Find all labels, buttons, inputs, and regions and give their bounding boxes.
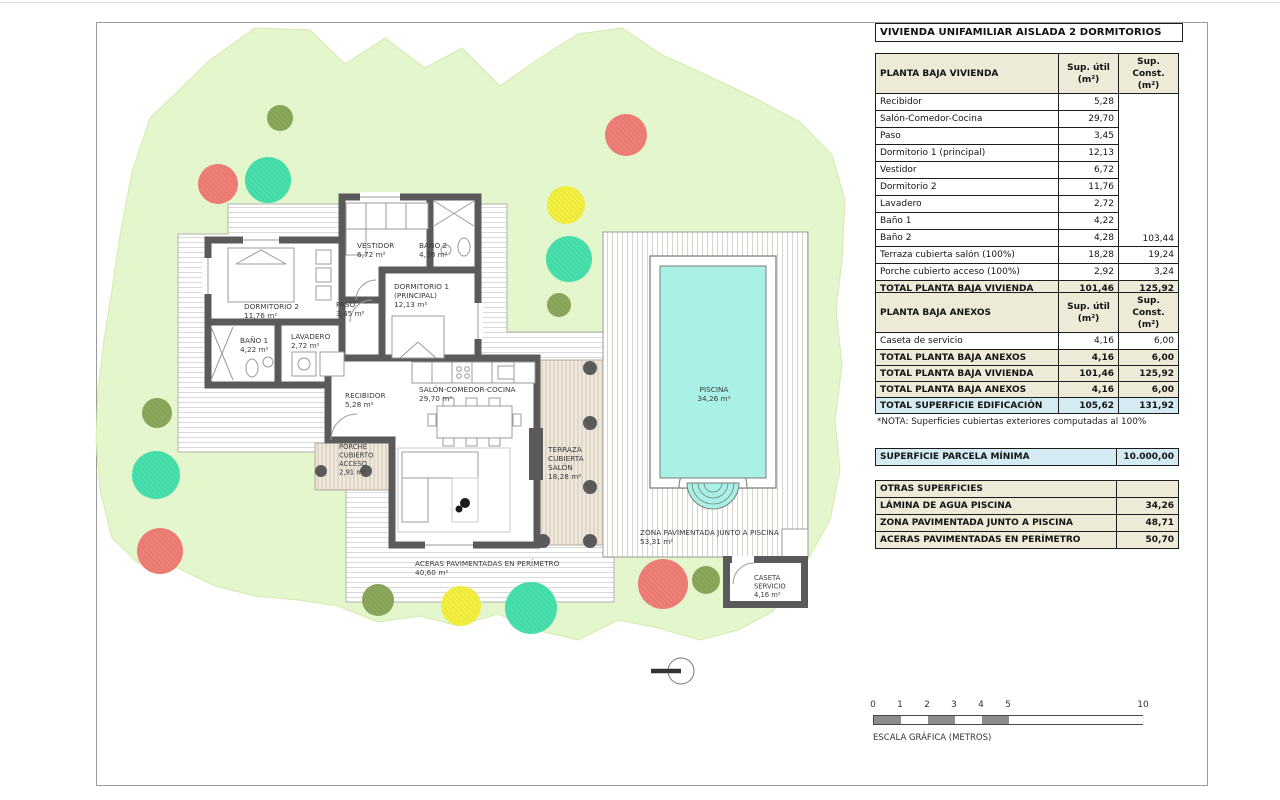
table-row: LÁMINA DE AGUA PISCINA34,26 bbox=[876, 498, 1179, 515]
table-row: SUPERFICIE PARCELA MÍNIMA10.000,00 bbox=[876, 449, 1179, 466]
table-row: ACERAS PAVIMENTADAS EN PERÍMETRO50,70 bbox=[876, 532, 1179, 549]
scale-segment bbox=[901, 716, 928, 724]
pool-water bbox=[660, 266, 766, 478]
scale-segment bbox=[874, 716, 901, 724]
table-header-row: PLANTA BAJA ANEXOSSup. útil (m²)Sup. Con… bbox=[876, 293, 1179, 333]
scale-tick-label: 10 bbox=[1137, 700, 1148, 710]
table-row: Terraza cubierta salón (100%)18,2819,24 bbox=[876, 247, 1179, 264]
scale-tick-label: 0 bbox=[870, 700, 876, 710]
scale-tick-label: 1 bbox=[897, 700, 903, 710]
tree-icon bbox=[605, 114, 647, 156]
label-bano-1: BAÑO 14,22 m² bbox=[240, 336, 269, 354]
pool-zone-gate bbox=[782, 529, 808, 557]
scale-segment bbox=[955, 716, 982, 724]
tree-icon bbox=[546, 236, 592, 282]
table-row: TOTAL PLANTA BAJA ANEXOS4,166,00 bbox=[876, 350, 1179, 367]
tree-icon bbox=[638, 559, 688, 609]
scale-segment bbox=[928, 716, 955, 724]
label-piscina: PISCINA34,26 m² bbox=[697, 385, 730, 403]
label-bano-2: BAÑO 24,28 m² bbox=[419, 241, 448, 259]
room-bano-2 bbox=[430, 197, 478, 270]
scale-segment bbox=[1009, 716, 1144, 724]
tree-icon bbox=[245, 157, 291, 203]
tree-icon bbox=[142, 398, 172, 428]
table-planta-baja-vivienda: PLANTA BAJA VIVIENDASup. útil (m²)Sup. C… bbox=[875, 53, 1179, 298]
table-header-row: OTRAS SUPERFICIES bbox=[876, 481, 1179, 498]
tree-icon bbox=[132, 451, 180, 499]
table-planta-baja-anexos: PLANTA BAJA ANEXOSSup. útil (m²)Sup. Con… bbox=[875, 292, 1179, 367]
table-otras-superficies: OTRAS SUPERFICIESLÁMINA DE AGUA PISCINA3… bbox=[875, 480, 1179, 549]
tree-icon bbox=[692, 566, 720, 594]
north-indicator-icon bbox=[651, 658, 694, 684]
scale-bar: ESCALA GRÁFICA (METROS) 01234510 bbox=[873, 700, 1153, 752]
tree-icon bbox=[547, 186, 585, 224]
scale-tick-label: 2 bbox=[924, 700, 930, 710]
table-row: Caseta de servicio4,166,00 bbox=[876, 333, 1179, 350]
table-row: TOTAL SUPERFICIE EDIFICACIÓN105,62131,92 bbox=[876, 398, 1179, 414]
scale-tick-label: 4 bbox=[978, 700, 984, 710]
scale-bar-track bbox=[873, 715, 1143, 725]
nota-text: *NOTA: Superficies cubiertas exteriores … bbox=[877, 417, 1183, 427]
wall-pier bbox=[529, 428, 543, 480]
tree-icon bbox=[362, 584, 394, 616]
tree-icon bbox=[137, 528, 183, 574]
tree-icon bbox=[505, 582, 557, 634]
scale-tick-label: 3 bbox=[951, 700, 957, 710]
tree-icon bbox=[198, 164, 238, 204]
scale-bar-caption: ESCALA GRÁFICA (METROS) bbox=[873, 733, 991, 743]
table-row: Recibidor5,28103,44 bbox=[876, 94, 1179, 111]
scale-tick-label: 5 bbox=[1005, 700, 1011, 710]
table-row: Porche cubierto acceso (100%)2,923,24 bbox=[876, 264, 1179, 281]
plan-sheet: DORMITORIO 211,76 m²BAÑO 14,22 m²LAVADER… bbox=[0, 0, 1280, 800]
tree-icon bbox=[547, 293, 571, 317]
drawing-title: VIVIENDA UNIFAMILIAR AISLADA 2 DORMITORI… bbox=[875, 23, 1183, 42]
pool bbox=[650, 256, 776, 509]
table-totales: TOTAL PLANTA BAJA VIVIENDA101,46125,92TO… bbox=[875, 365, 1179, 414]
table-header-row: PLANTA BAJA VIVIENDASup. útil (m²)Sup. C… bbox=[876, 54, 1179, 94]
table-row: TOTAL PLANTA BAJA ANEXOS4,166,00 bbox=[876, 382, 1179, 398]
table-superficie-parcela: SUPERFICIE PARCELA MÍNIMA10.000,00 bbox=[875, 448, 1179, 466]
tree-icon bbox=[267, 105, 293, 131]
scale-segment bbox=[982, 716, 1009, 724]
tree-icon bbox=[441, 586, 481, 626]
table-row: TOTAL PLANTA BAJA VIVIENDA101,46125,92 bbox=[876, 366, 1179, 382]
table-row: ZONA PAVIMENTADA JUNTO A PISCINA48,71 bbox=[876, 515, 1179, 532]
